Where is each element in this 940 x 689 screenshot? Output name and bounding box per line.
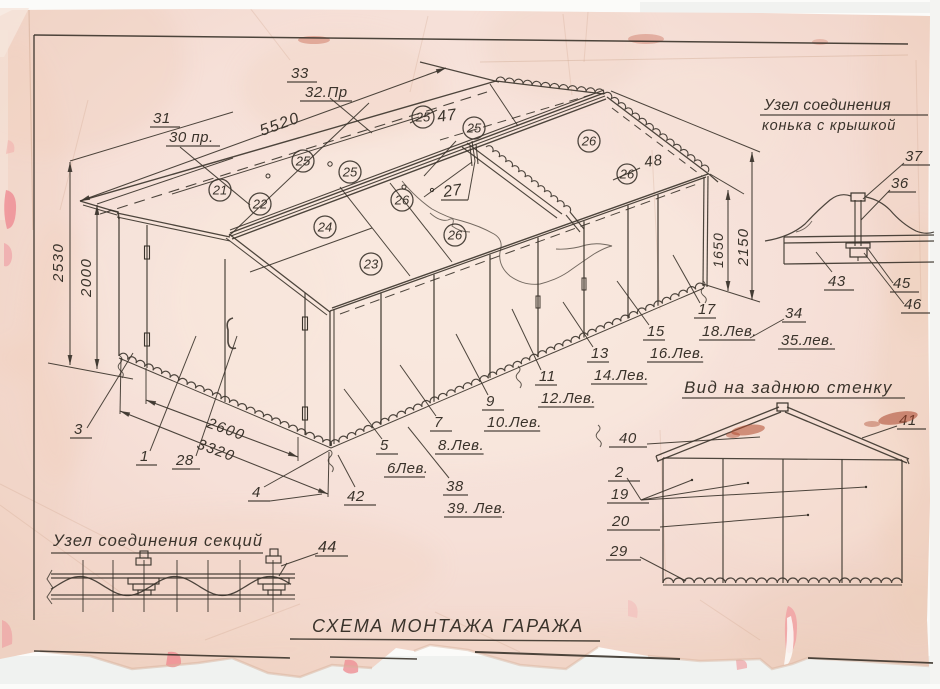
svg-text:26: 26	[581, 134, 597, 149]
svg-text:46: 46	[904, 296, 922, 313]
svg-text:40: 40	[619, 430, 637, 447]
svg-text:3: 3	[74, 421, 83, 438]
svg-text:17: 17	[698, 301, 716, 318]
svg-text:4: 4	[252, 484, 261, 501]
svg-text:48: 48	[643, 152, 664, 171]
svg-text:6Лев.: 6Лев.	[387, 460, 428, 477]
svg-text:43: 43	[828, 273, 846, 290]
svg-text:10.Лев.: 10.Лев.	[487, 414, 542, 431]
svg-text:5: 5	[380, 437, 389, 454]
svg-text:18.Лев.: 18.Лев.	[702, 323, 757, 340]
svg-text:21: 21	[212, 183, 227, 198]
svg-text:47: 47	[436, 106, 458, 126]
svg-text:29: 29	[609, 543, 628, 560]
svg-text:30 пр.: 30 пр.	[169, 129, 214, 146]
svg-text:16.Лев.: 16.Лев.	[650, 345, 705, 362]
svg-text:1650: 1650	[710, 232, 726, 268]
svg-text:2530: 2530	[50, 243, 67, 283]
svg-text:23: 23	[363, 257, 379, 272]
svg-text:СХЕМА МОНТАЖА ГАРАЖА: СХЕМА МОНТАЖА ГАРАЖА	[312, 616, 584, 636]
svg-text:26: 26	[394, 193, 410, 208]
svg-text:36: 36	[891, 175, 909, 192]
svg-text:44: 44	[318, 539, 337, 556]
svg-text:2: 2	[614, 464, 624, 481]
svg-text:22: 22	[252, 197, 268, 212]
svg-text:27: 27	[441, 181, 464, 201]
svg-text:2150: 2150	[735, 228, 752, 267]
svg-text:35.лев.: 35.лев.	[781, 332, 834, 349]
svg-text:31: 31	[153, 110, 171, 127]
svg-text:38: 38	[446, 478, 464, 495]
svg-text:25: 25	[295, 154, 311, 169]
svg-text:20: 20	[611, 513, 630, 530]
svg-text:Узел соединения секций: Узел соединения секций	[52, 532, 263, 550]
svg-text:25: 25	[342, 165, 358, 180]
svg-text:9: 9	[486, 393, 495, 410]
svg-text:32.Пр: 32.Пр	[305, 84, 348, 101]
svg-text:2000: 2000	[78, 258, 95, 298]
svg-text:15: 15	[647, 323, 665, 340]
svg-text:45: 45	[893, 275, 911, 292]
svg-text:25: 25	[466, 121, 482, 136]
svg-text:11: 11	[539, 368, 556, 385]
svg-text:26: 26	[447, 228, 463, 243]
svg-text:33: 33	[291, 65, 309, 82]
svg-text:Вид на заднюю стенку: Вид на заднюю стенку	[684, 378, 893, 397]
svg-text:8.Лев.: 8.Лев.	[438, 437, 484, 454]
svg-text:12.Лев.: 12.Лев.	[541, 390, 596, 407]
svg-text:42: 42	[347, 488, 365, 505]
svg-text:37: 37	[905, 148, 923, 165]
svg-text:39. Лев.: 39. Лев.	[447, 500, 507, 517]
svg-text:1: 1	[140, 448, 149, 465]
svg-text:28: 28	[175, 452, 194, 469]
svg-text:7: 7	[434, 414, 443, 431]
svg-text:34: 34	[785, 305, 803, 322]
svg-text:14.Лев.: 14.Лев.	[594, 367, 649, 384]
svg-text:Узел соединения: Узел соединения	[763, 97, 891, 114]
svg-text:конька с крышкой: конька с крышкой	[762, 118, 896, 134]
svg-text:13: 13	[591, 345, 609, 362]
svg-text:24: 24	[317, 220, 332, 235]
svg-text:19: 19	[611, 486, 629, 503]
